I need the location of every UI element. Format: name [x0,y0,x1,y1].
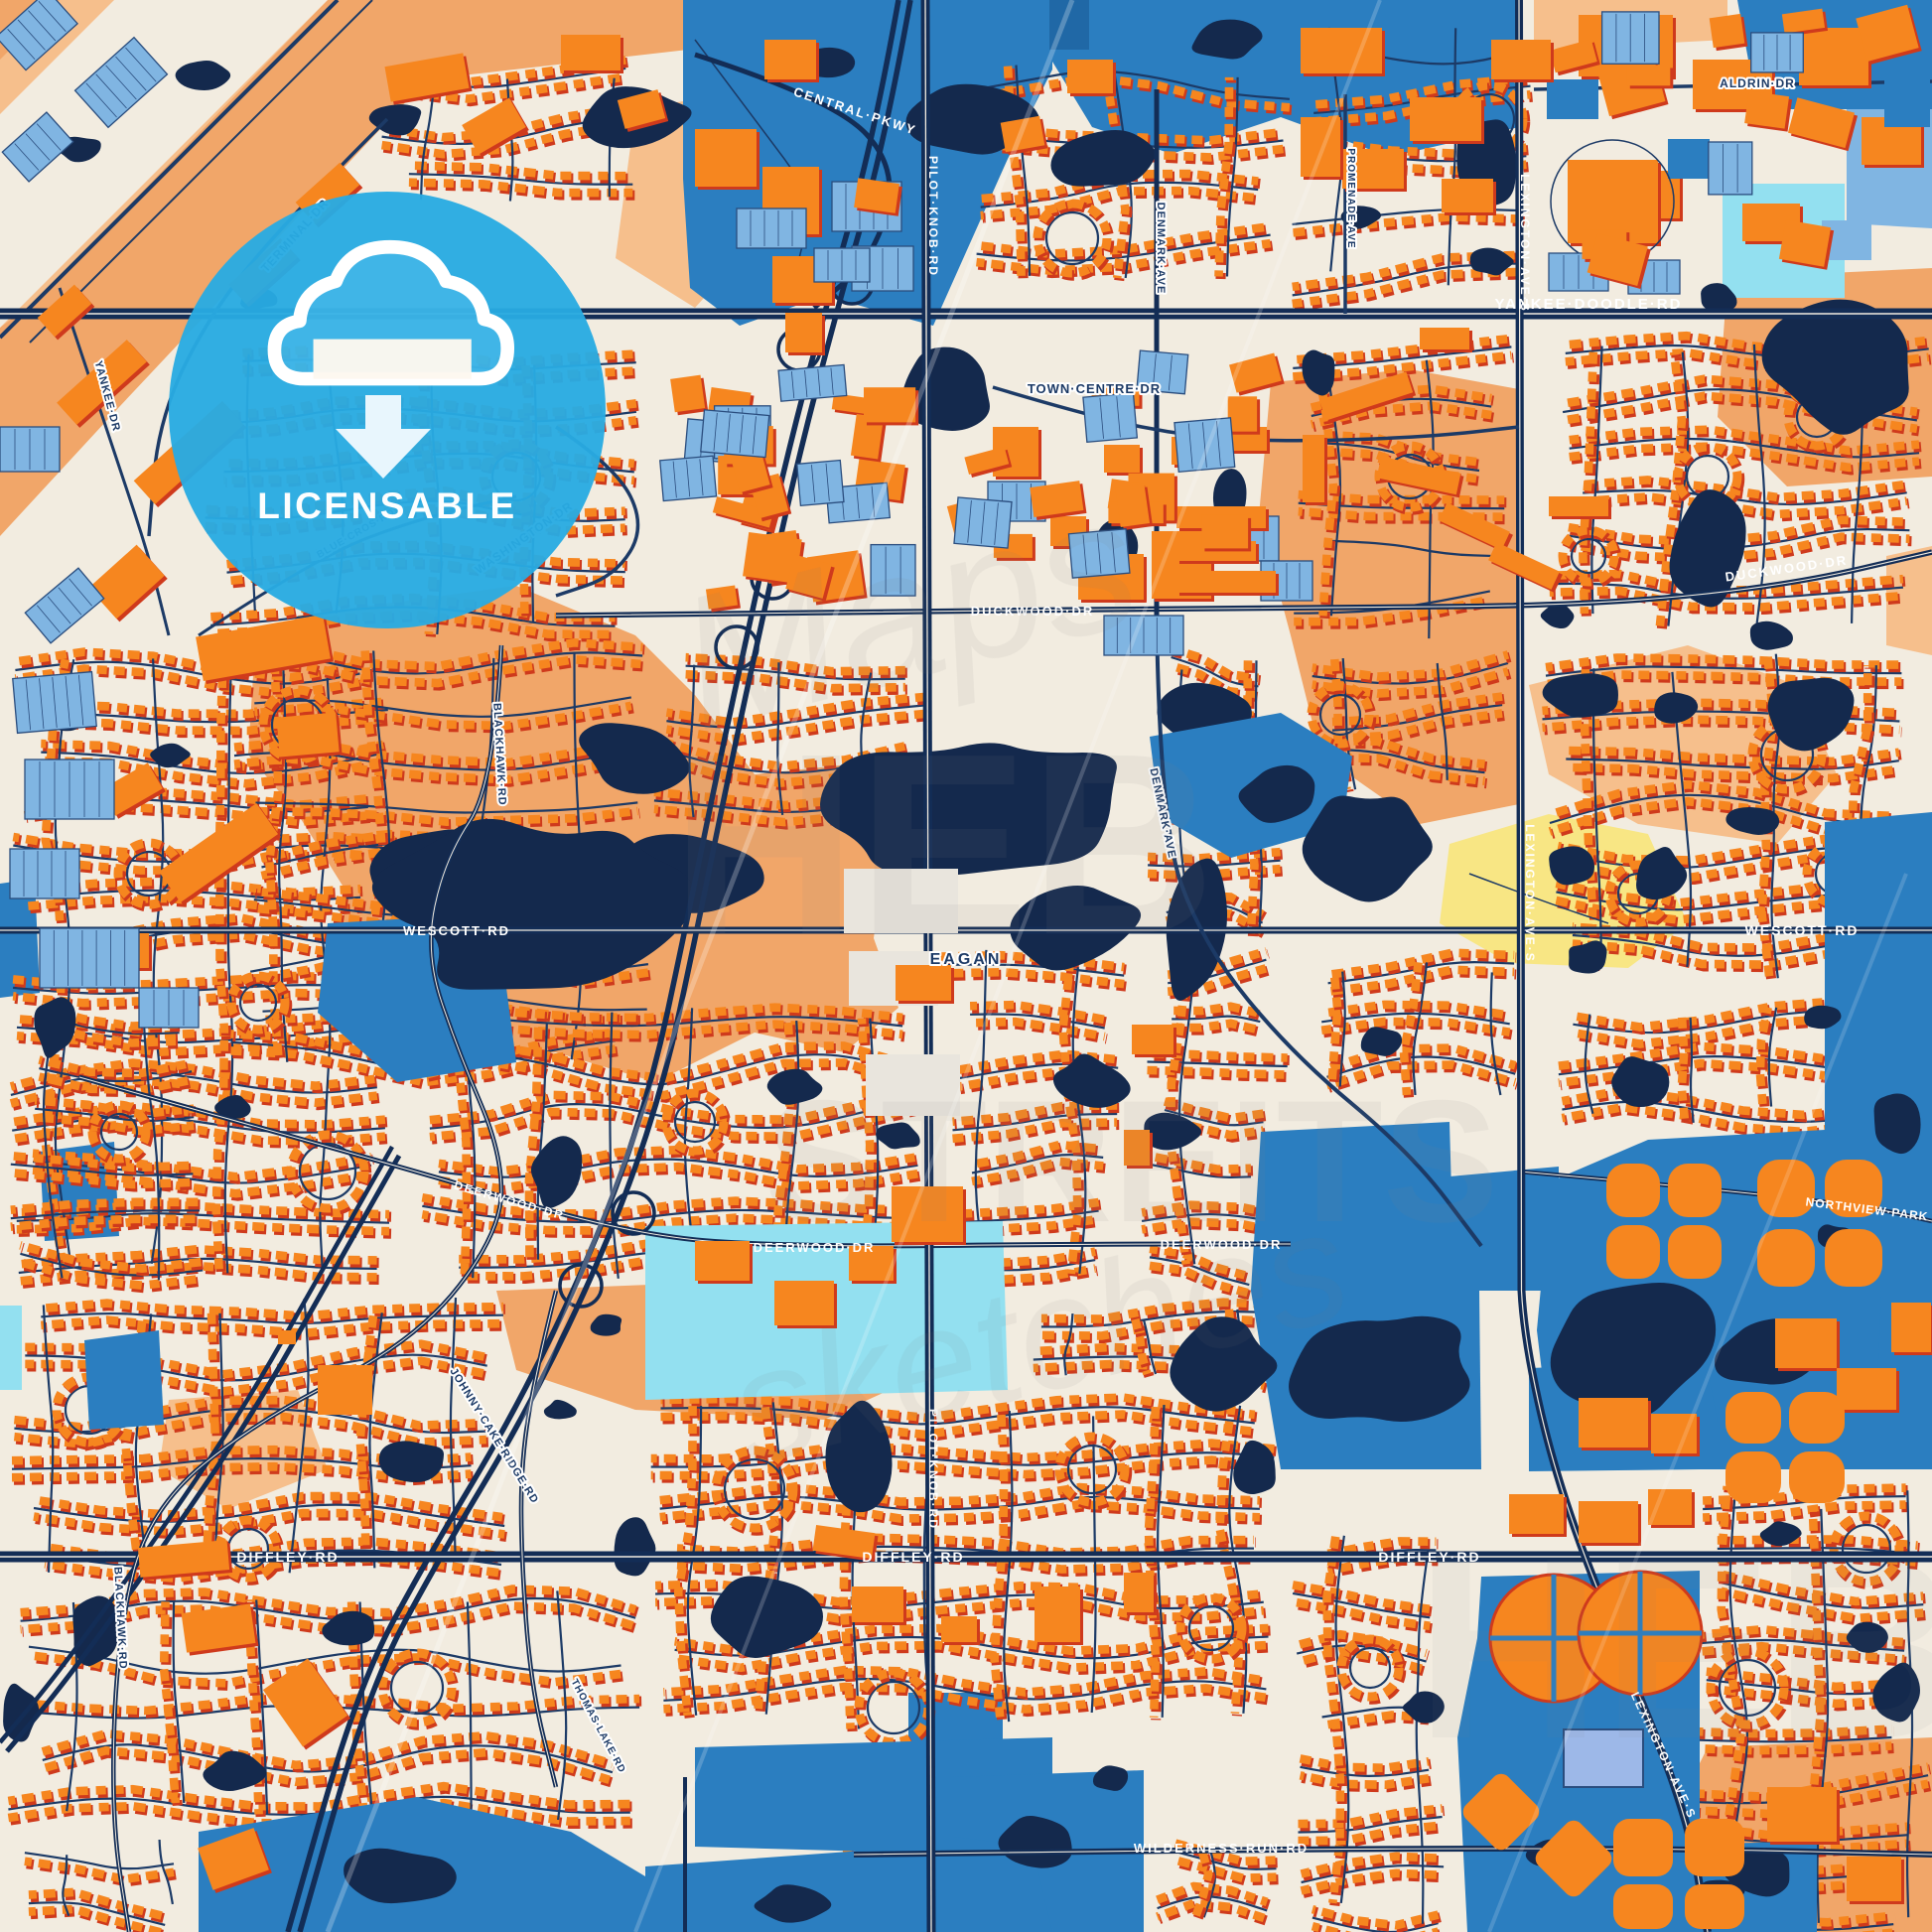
svg-text:LEXINGTON·AVE·S: LEXINGTON·AVE·S [1518,174,1532,313]
svg-text:DIFFLEY·RD: DIFFLEY·RD [862,1549,964,1565]
svg-text:STREITS: STREITS [765,1065,1499,1259]
svg-text:WESCOTT·RD: WESCOTT·RD [403,923,510,938]
svg-text:TOWN·CENTRE·DR: TOWN·CENTRE·DR [1028,381,1161,396]
svg-text:DIFFLEY·RD: DIFFLEY·RD [236,1549,339,1565]
svg-text:HEB: HEB [671,701,1216,989]
svg-text:PROMENADE·AVE: PROMENADE·AVE [1345,148,1356,248]
svg-text:WESCOTT·RD: WESCOTT·RD [1745,922,1860,938]
svg-text:LEXINGTON·AVE·S: LEXINGTON·AVE·S [1523,824,1537,963]
svg-text:PILOT·KNOB·RD: PILOT·KNOB·RD [926,156,940,277]
svg-text:ALDRIN·DR: ALDRIN·DR [1720,76,1795,90]
svg-text:DENMARK·AVE: DENMARK·AVE [1155,203,1167,295]
svg-text:LICENSABLE: LICENSABLE [257,485,516,526]
svg-text:WILDERNESS·RUN·RD: WILDERNESS·RUN·RD [1134,1841,1309,1856]
svg-text:HEB: HEB [1416,1505,1932,1793]
